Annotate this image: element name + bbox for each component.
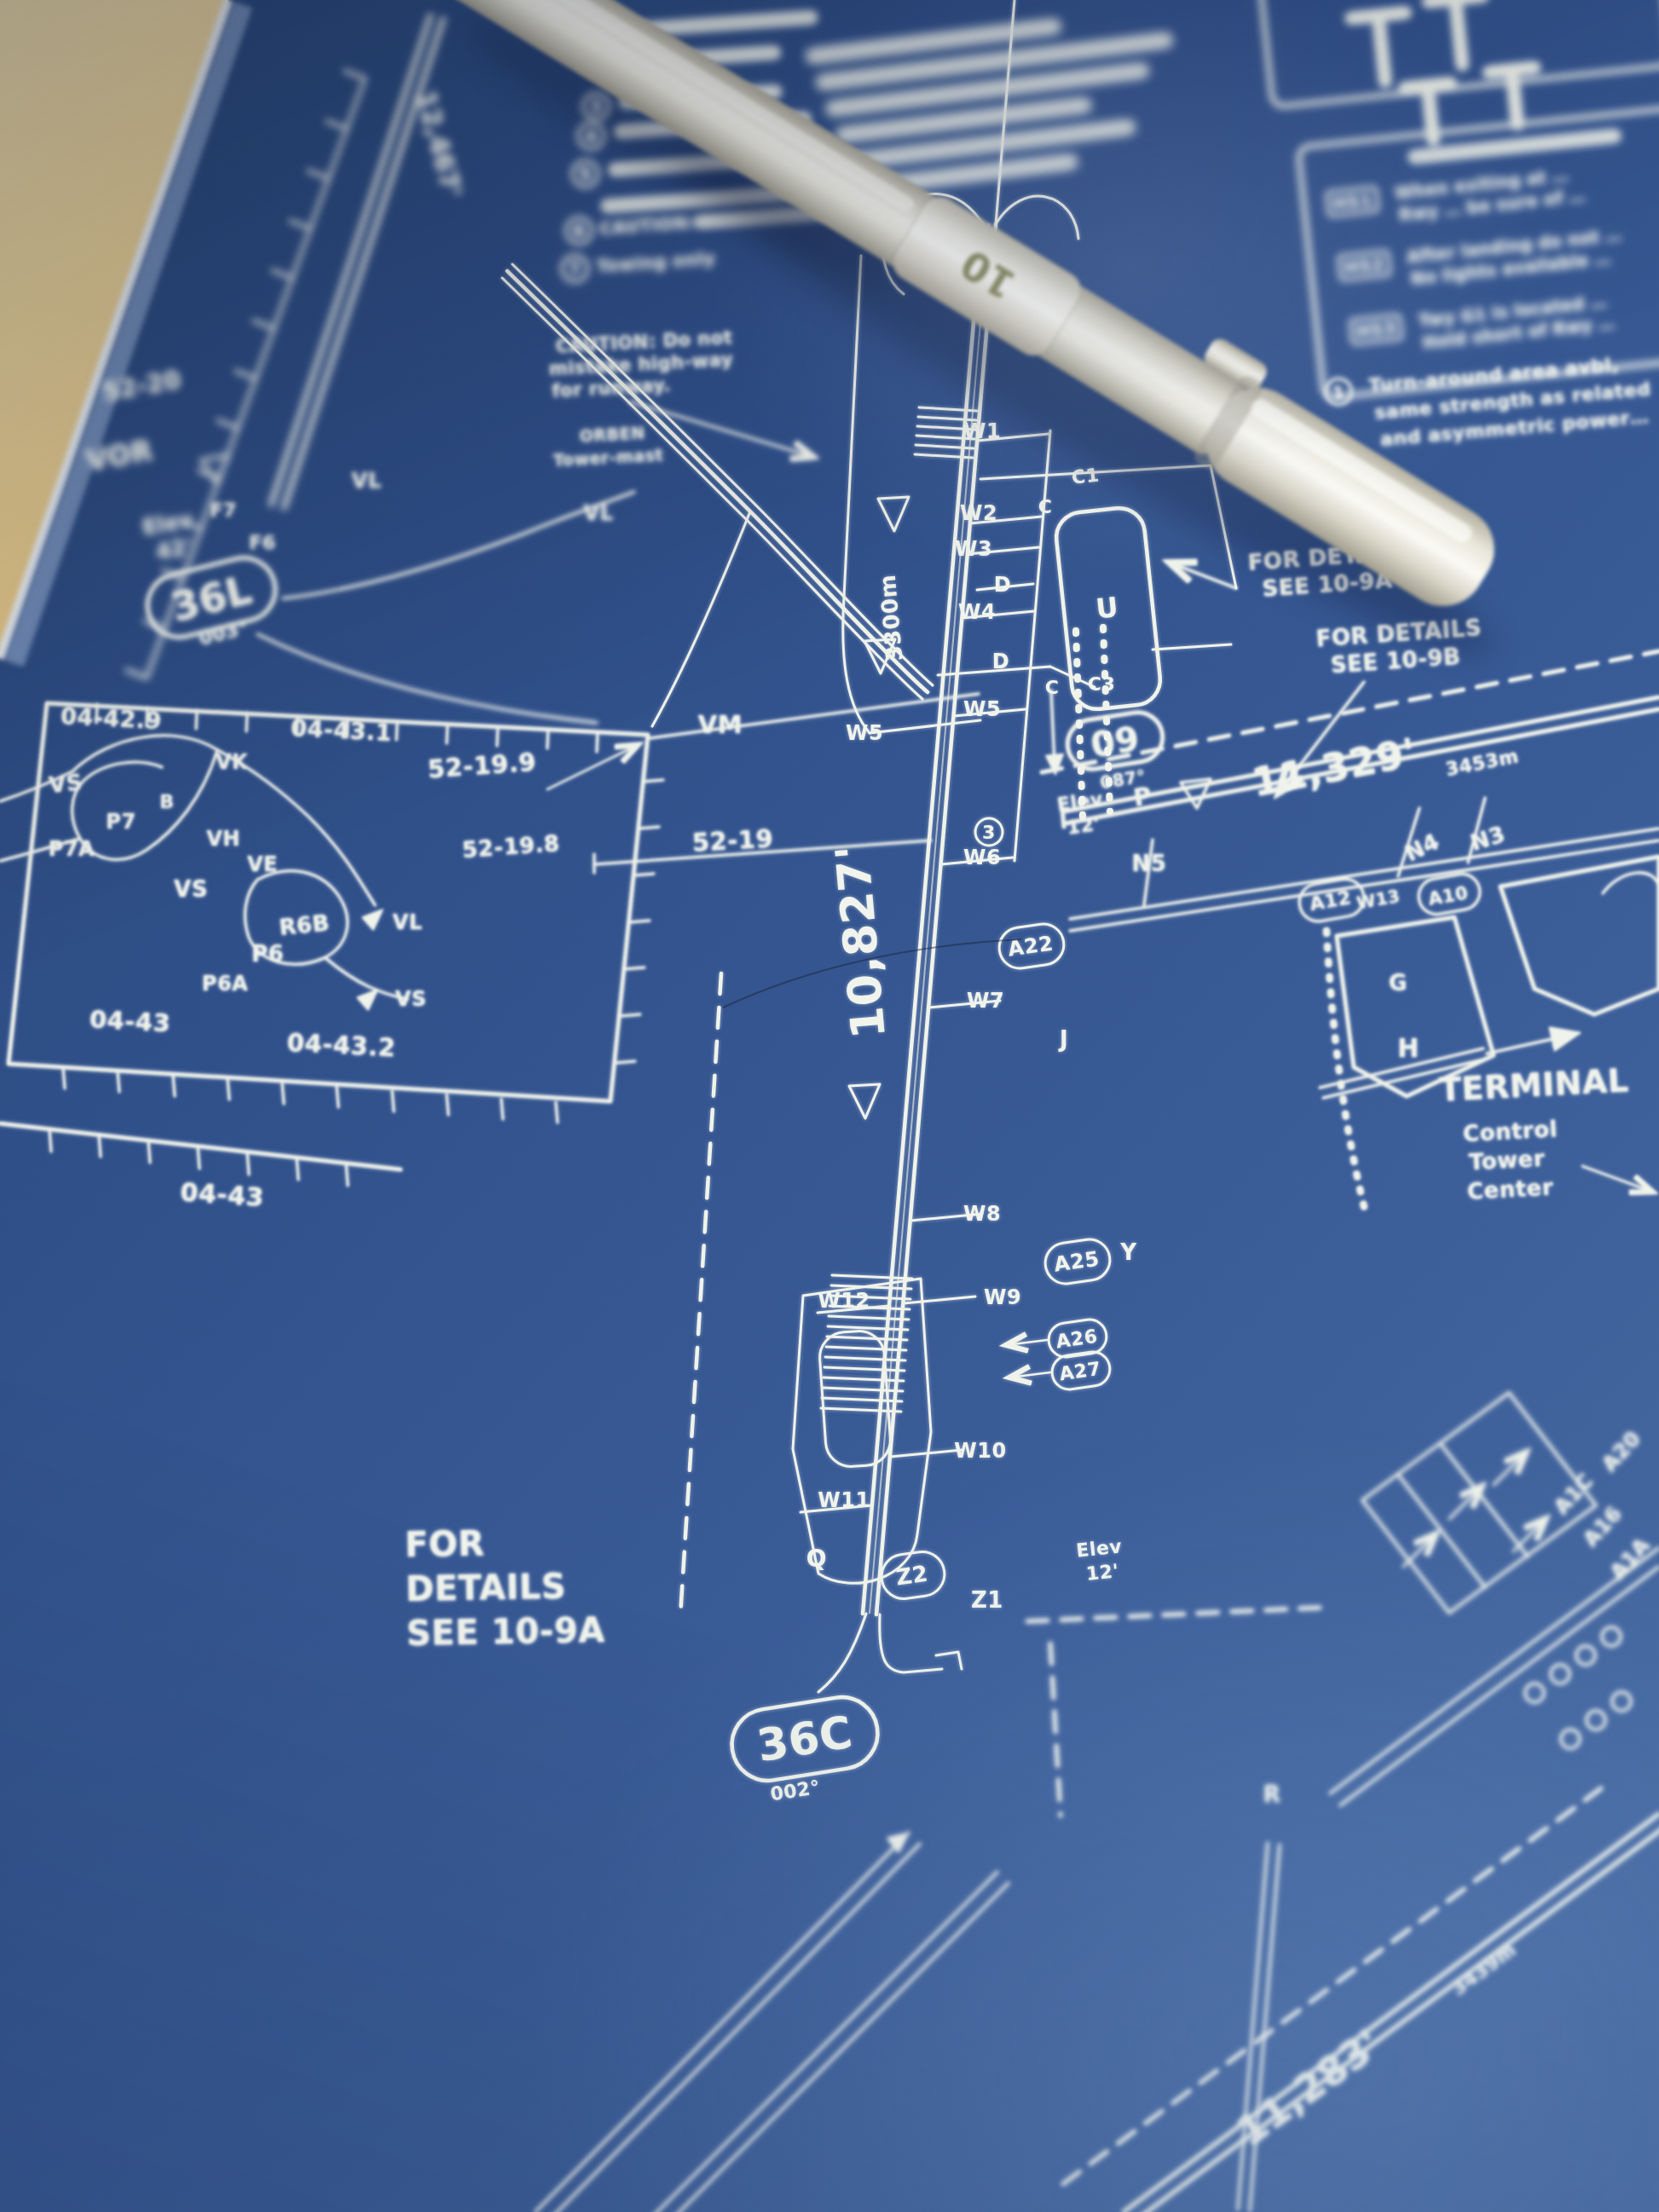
twy-vl-label-c: VL: [584, 501, 614, 525]
twy-p7-label: P7: [106, 810, 136, 834]
twy-z2-label: Z2: [894, 1561, 930, 1591]
twy-g-label: G: [1389, 970, 1408, 996]
twy-ve-label: VE: [247, 852, 278, 876]
note-6-number: 6: [572, 220, 586, 241]
twy-w10-label: W10: [954, 1439, 1006, 1463]
details-c-line-1: FOR: [405, 1524, 485, 1565]
twy-vl-label-b: VL: [393, 910, 423, 934]
details-c-line-2: DETAILS: [405, 1567, 566, 1608]
twy-vl-label-a: VL: [352, 469, 382, 493]
twy-n5-label: N5: [1132, 851, 1167, 876]
mast-label-1: ORBEN: [579, 423, 645, 445]
turnaround-number: 1: [1332, 382, 1345, 403]
twy-w5-label-b: W5: [963, 697, 1001, 721]
twy-f7-label: F7: [210, 500, 236, 521]
twy-f6-label: F6: [249, 532, 275, 553]
twy-j-label: J: [1058, 1026, 1068, 1052]
twy-w1-label: W1: [963, 419, 1001, 443]
twy-w9-label: W9: [984, 1285, 1021, 1309]
hs3-tag: HS3: [1356, 317, 1397, 342]
twy-vs-label-c: VS: [396, 987, 427, 1011]
twy-vm-label: VM: [698, 710, 743, 739]
control-tower-line-2: Tower: [1468, 1146, 1546, 1175]
twy-p7b-label: B: [159, 791, 174, 812]
twy-u-label: U: [1095, 591, 1120, 626]
twy-vk-label: VK: [216, 750, 249, 774]
twy-d-label-b: D: [992, 650, 1009, 673]
hs2-tag: HS2: [1344, 253, 1385, 278]
twy-w5-label-a: W5: [846, 721, 883, 745]
runway-09-id: 09: [1089, 719, 1142, 765]
runway-note-3: 3: [982, 822, 996, 843]
grid-label-04-43-lower: 04-43: [179, 1177, 265, 1213]
twy-p7a-label: P7A: [49, 837, 95, 861]
twy-w4-label: W4: [958, 600, 996, 624]
twy-p6-label: P6: [251, 941, 284, 967]
twy-y-label: Y: [1119, 1239, 1137, 1265]
twy-c-label-a: C: [1038, 496, 1053, 517]
twy-r6b-label: R6B: [278, 910, 331, 940]
twy-vs-label-a: VS: [48, 769, 84, 798]
details-c-line-3: SEE 10-9A: [406, 1610, 605, 1653]
twy-w8-label: W8: [963, 1202, 1001, 1226]
twy-d-label-a: D: [994, 573, 1011, 597]
grid-label-04-43-1: 04-43.1: [290, 714, 392, 746]
grid-label-04-42-9: 04-42.9: [60, 702, 162, 734]
note-7-number: 7: [568, 258, 581, 280]
twy-w7-label: W7: [967, 989, 1004, 1013]
hs1-tag: HS1: [1332, 189, 1373, 214]
grid-label-04-43-2: 04-43.2: [286, 1028, 396, 1063]
twy-z1-label: Z1: [971, 1587, 1003, 1613]
control-tower-line-1: Control: [1462, 1116, 1558, 1146]
twy-h-label: H: [1397, 1033, 1419, 1063]
blueprint-scene: 52-20 VOR Elev 42' 12,467' 36L 003° F7 F…: [0, 0, 1659, 2212]
control-tower-line-3: Center: [1466, 1174, 1554, 1204]
twy-w11-label: W11: [818, 1488, 870, 1512]
twy-r-label: R: [1263, 1782, 1281, 1807]
twy-q-label: Q: [806, 1545, 827, 1573]
twy-w6-label: W6: [963, 846, 1001, 869]
note-5-number: 5: [579, 163, 592, 184]
twy-w12-label: W12: [818, 1289, 870, 1313]
elev-09-value: 12': [1066, 812, 1101, 838]
photo-of-blueprint: 52-20 VOR Elev 42' 12,467' 36L 003° F7 F…: [0, 0, 1659, 2212]
twy-vh-label: VH: [206, 827, 240, 851]
twy-p6a-label: P6A: [202, 972, 248, 996]
blueprint-paper: [0, 0, 1659, 2212]
twy-w2-label: W2: [960, 501, 997, 525]
elev-z-value: 12': [1085, 1560, 1120, 1585]
twy-w3-label: W3: [955, 537, 992, 561]
grid-label-04-43-a: 04-43: [89, 1005, 171, 1038]
twy-c3-label: C3: [1088, 673, 1115, 695]
twy-vs-label-b: VS: [174, 876, 208, 902]
